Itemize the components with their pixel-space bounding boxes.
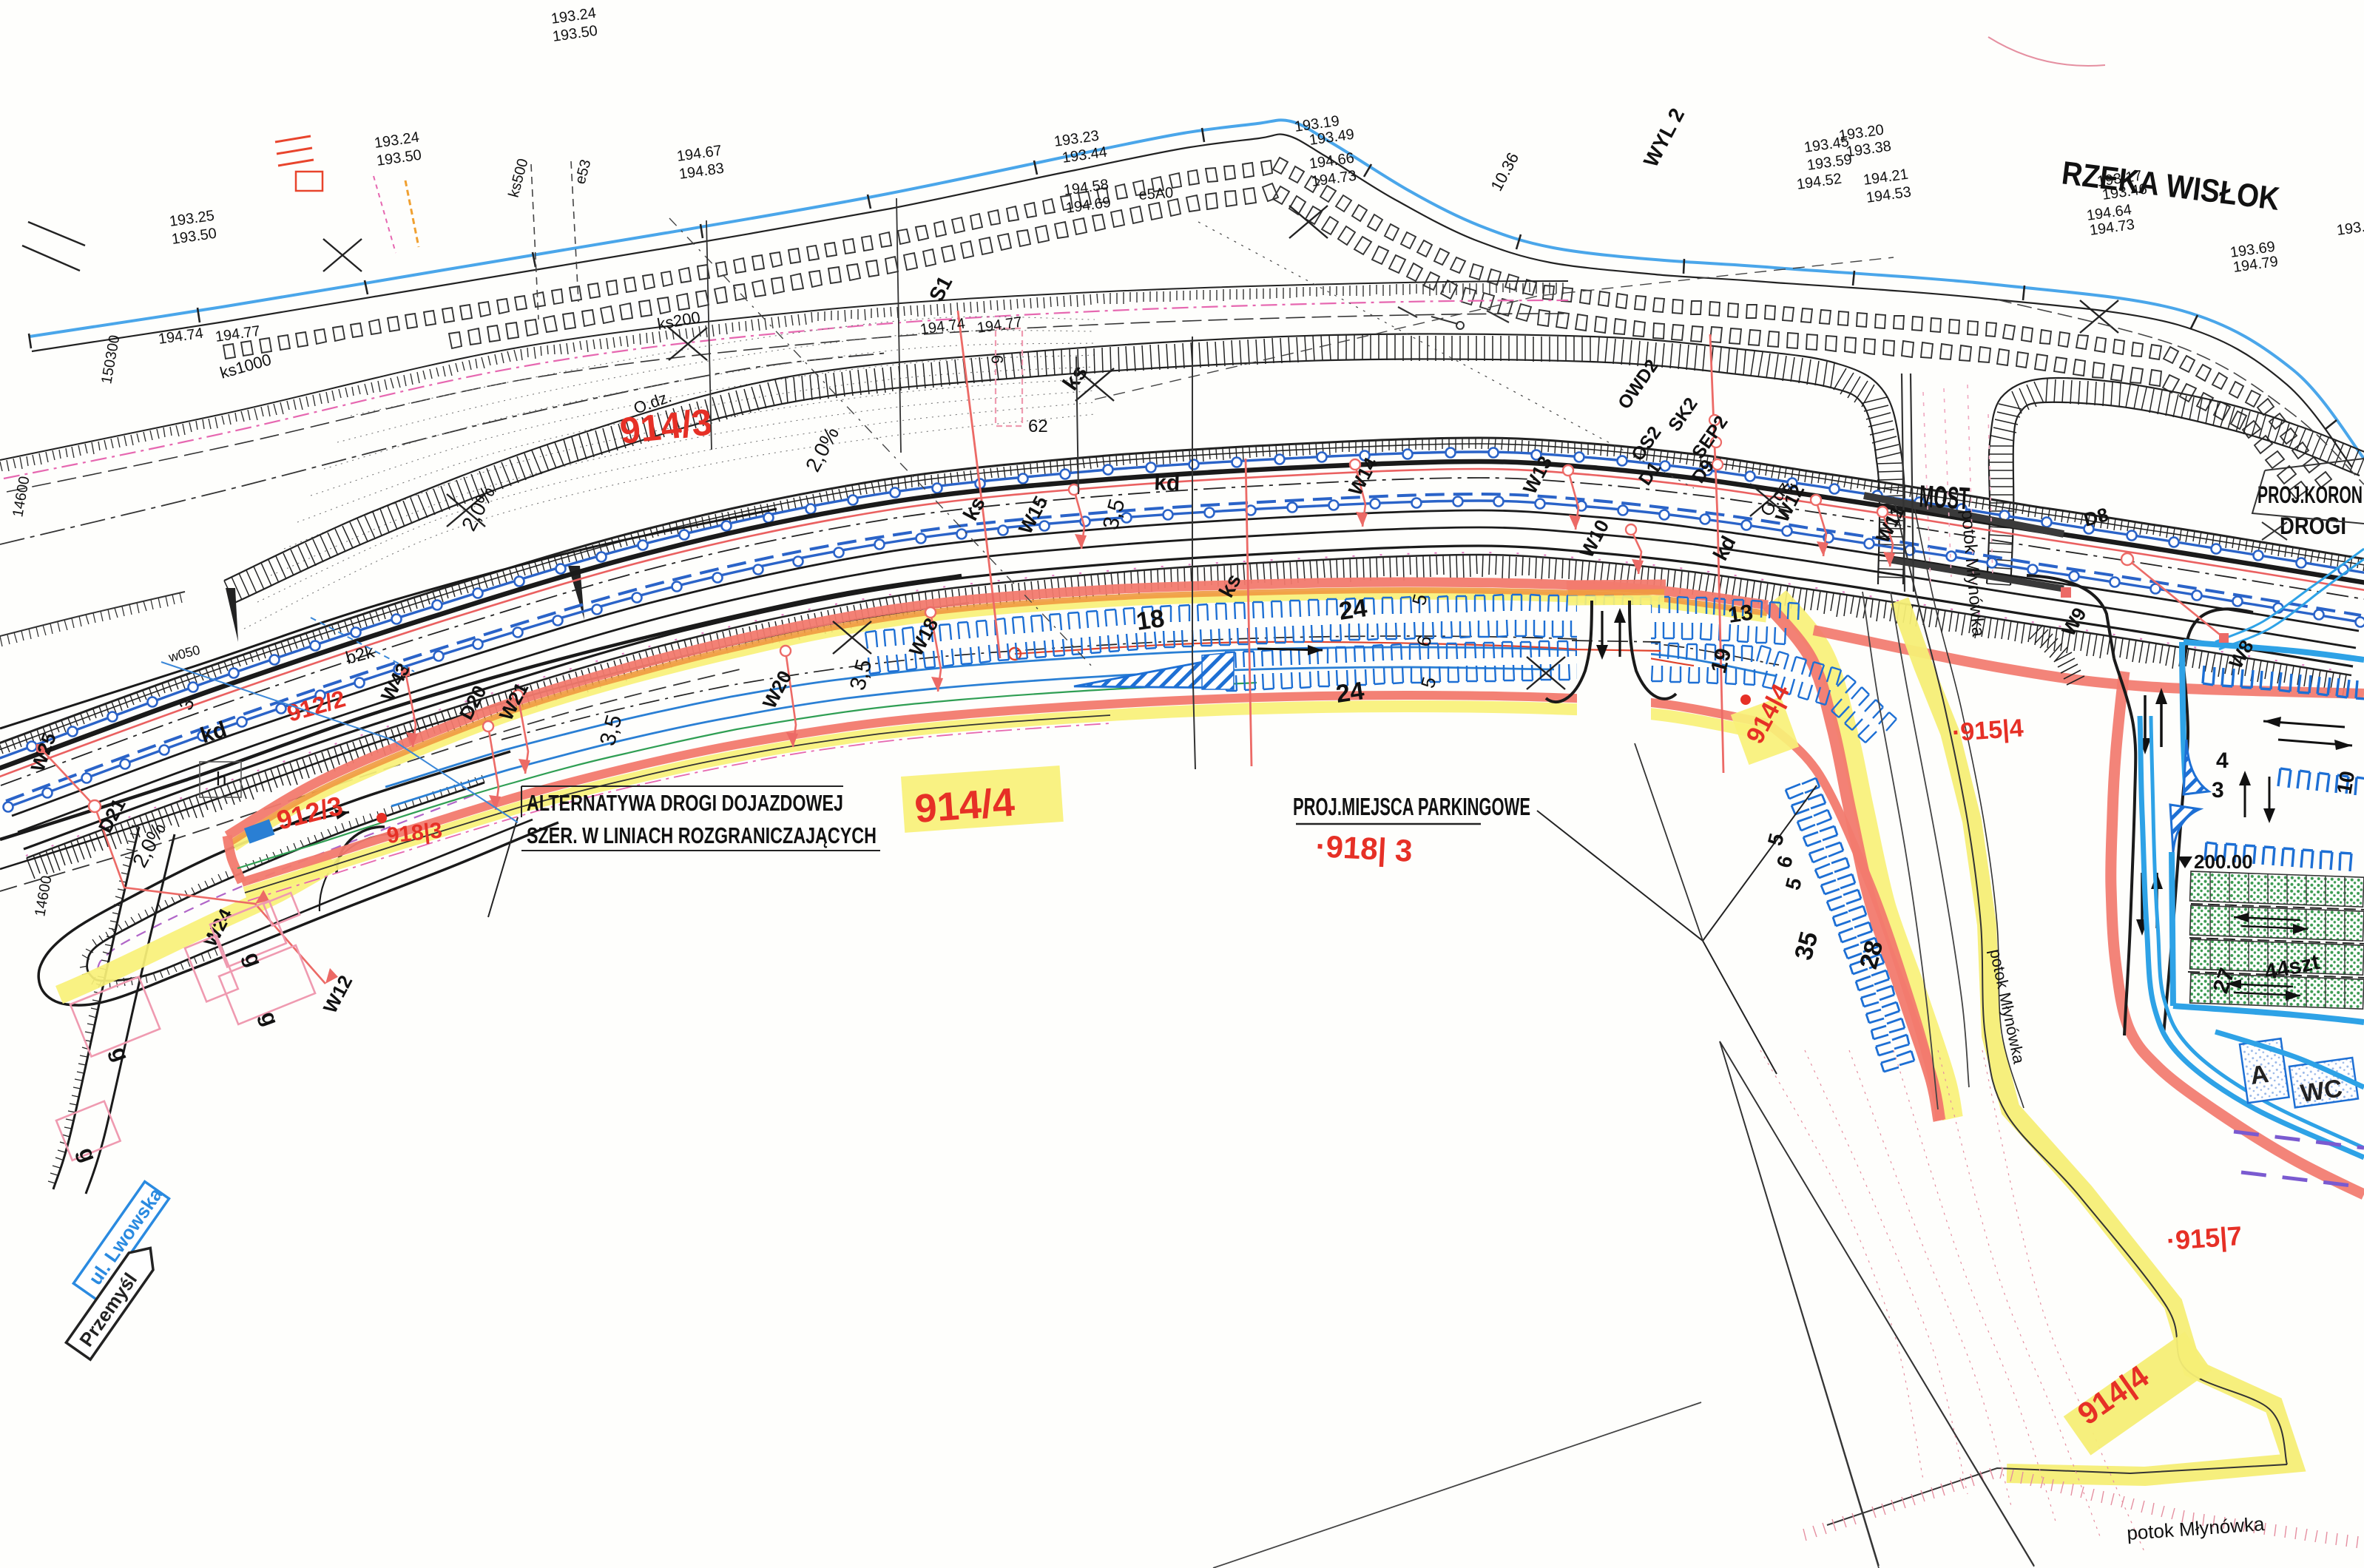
svg-text:·915|4: ·915|4	[1951, 714, 2024, 747]
svg-text:·918| 3: ·918| 3	[1314, 828, 1413, 869]
svg-text:13: 13	[1726, 601, 1755, 628]
svg-text:10: 10	[2332, 769, 2359, 796]
svg-text:PROJ.KORON: PROJ.KORON	[2257, 481, 2363, 508]
svg-text:·915|7: ·915|7	[2166, 1220, 2243, 1257]
svg-text:914/4: 914/4	[913, 780, 1016, 831]
svg-text:24: 24	[1337, 594, 1369, 626]
svg-text:PROJ.MIEJSCA PARKINGOWE: PROJ.MIEJSCA PARKINGOWE	[1293, 793, 1530, 820]
svg-text:18: 18	[1135, 604, 1166, 636]
svg-text:WC: WC	[2299, 1074, 2344, 1108]
svg-text:ALTERNATYWA DROGI DOJAZDOWEJ: ALTERNATYWA DROGI DOJAZDOWEJ	[527, 790, 843, 816]
svg-text:h: h	[216, 768, 226, 790]
svg-text:3: 3	[2212, 778, 2224, 802]
svg-text:62: 62	[1028, 416, 1048, 436]
svg-text:e5A0: e5A0	[1138, 185, 1174, 203]
svg-text:9: 9	[988, 355, 1007, 364]
svg-text:A: A	[2249, 1060, 2271, 1090]
svg-text:SZER. W LINIACH ROZGRANICZAJĄC: SZER. W LINIACH ROZGRANICZAJĄCYCH	[527, 822, 877, 848]
svg-text:24: 24	[1334, 677, 1366, 709]
svg-text:kd: kd	[1154, 470, 1181, 496]
svg-text:4: 4	[2216, 748, 2229, 773]
svg-text:200.00: 200.00	[2194, 851, 2253, 873]
